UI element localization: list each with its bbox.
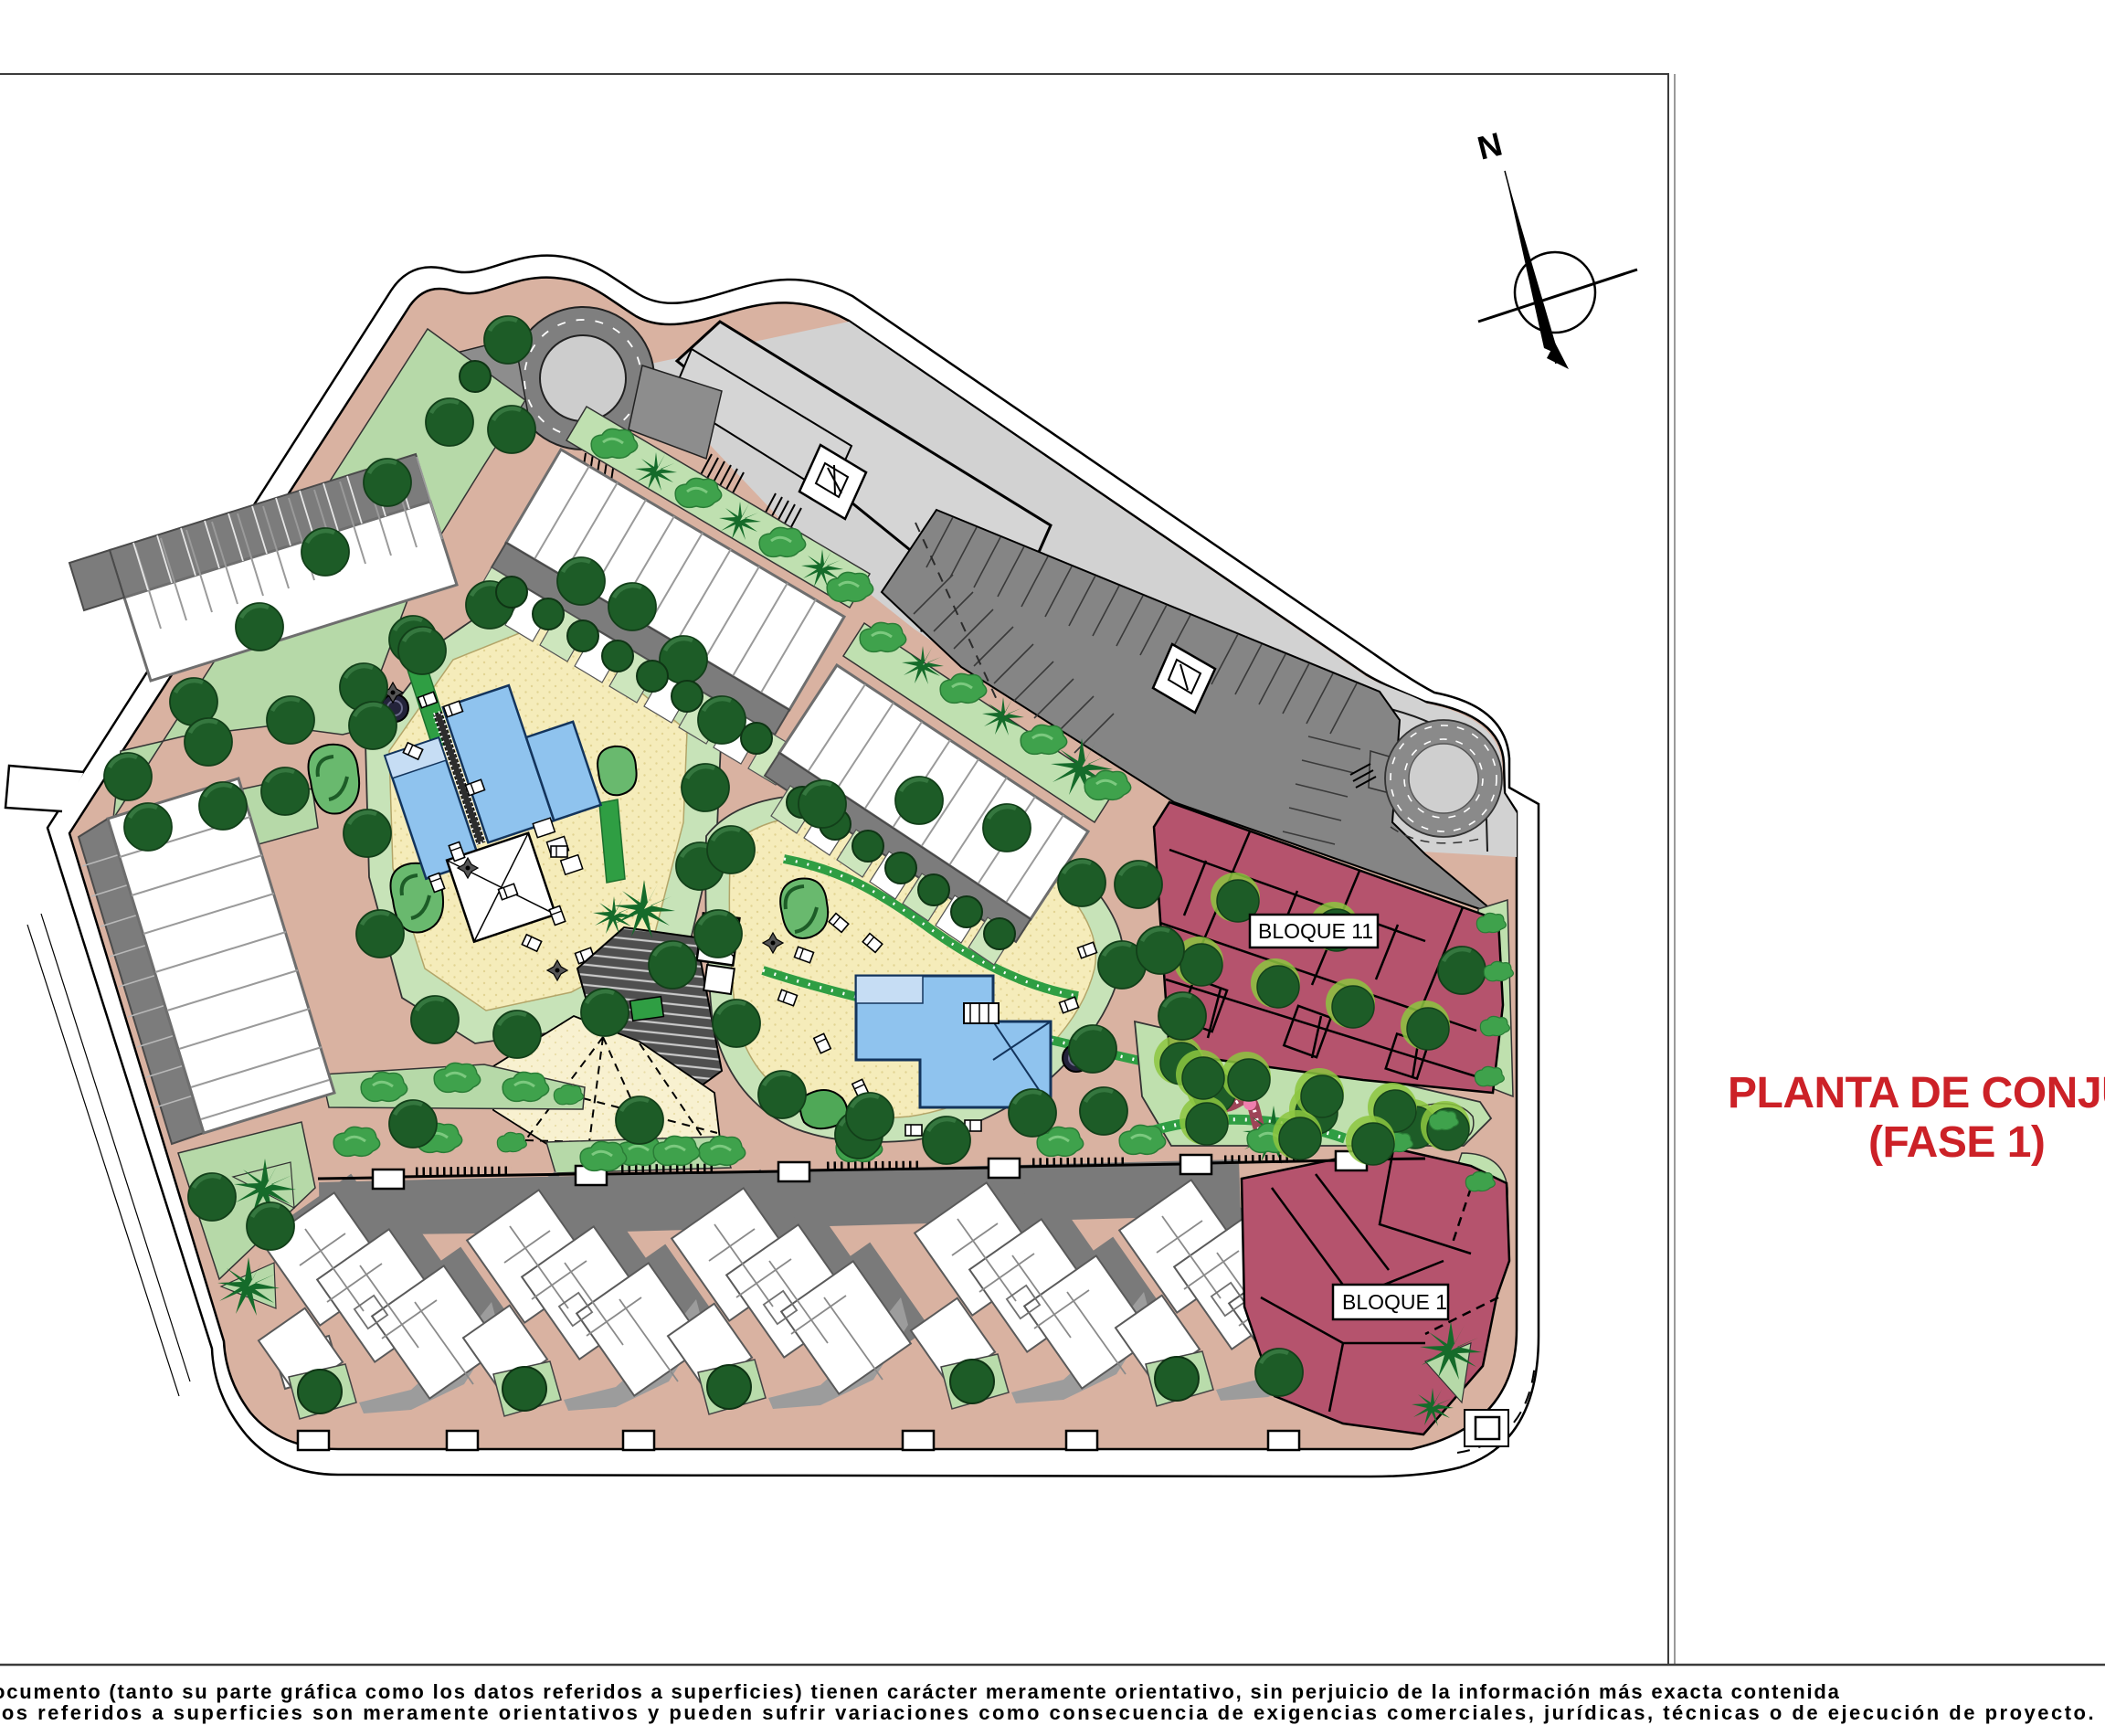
svg-text:tos referidos a superficies so: tos referidos a superficies son merament… [0,1701,2096,1724]
svg-text:PLANTA DE CONJUNTO: PLANTA DE CONJUNTO [1728,1069,2105,1117]
svg-text:BLOQUE 1: BLOQUE 1 [1342,1290,1447,1314]
svg-text:ocumento (tanto su parte gráfi: ocumento (tanto su parte gráfica como lo… [0,1680,1841,1703]
svg-text:BLOQUE 11: BLOQUE 11 [1258,919,1373,943]
svg-text:(FASE 1): (FASE 1) [1868,1118,2045,1167]
